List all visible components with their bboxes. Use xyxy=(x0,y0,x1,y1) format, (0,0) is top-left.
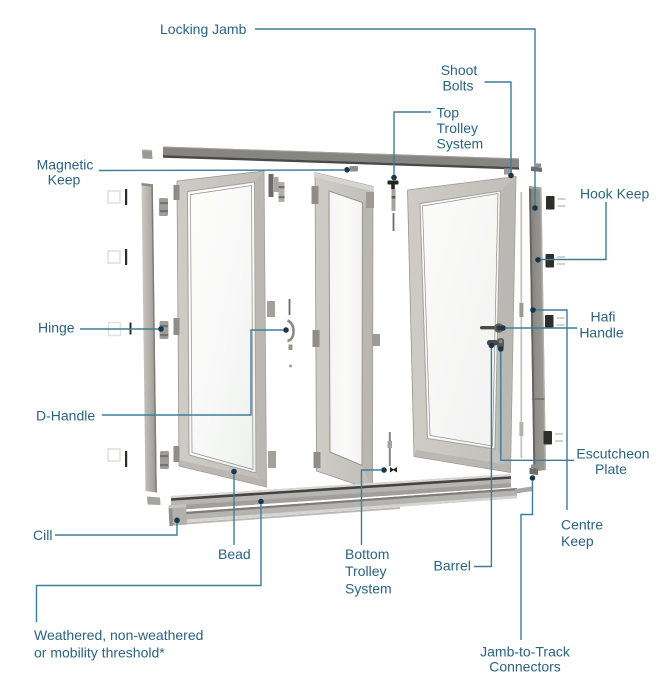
svg-text:Bolts: Bolts xyxy=(442,78,473,94)
svg-text:Connectors: Connectors xyxy=(489,659,561,675)
svg-text:or mobility threshold*: or mobility threshold* xyxy=(34,645,165,661)
svg-text:Weathered, non-weathered: Weathered, non-weathered xyxy=(34,627,203,643)
svg-text:Keep: Keep xyxy=(561,533,594,549)
svg-text:Plate: Plate xyxy=(595,461,627,477)
svg-text:Locking Jamb: Locking Jamb xyxy=(160,21,247,37)
svg-text:Cill: Cill xyxy=(33,527,52,543)
svg-text:Handle: Handle xyxy=(579,325,624,341)
svg-text:Barrel: Barrel xyxy=(434,558,471,574)
svg-text:Trolley: Trolley xyxy=(437,120,479,136)
svg-text:Top: Top xyxy=(437,105,460,121)
svg-text:Bottom: Bottom xyxy=(345,546,389,562)
svg-text:Hafi: Hafi xyxy=(591,309,616,325)
svg-text:System: System xyxy=(345,581,392,597)
svg-text:Escutcheon: Escutcheon xyxy=(576,446,649,462)
svg-text:Hinge: Hinge xyxy=(38,320,75,336)
svg-text:Shoot: Shoot xyxy=(441,62,478,78)
svg-text:Centre: Centre xyxy=(561,517,603,533)
svg-text:Trolley: Trolley xyxy=(345,563,387,579)
svg-text:Jamb-to-Track: Jamb-to-Track xyxy=(480,644,571,660)
svg-text:Magnetic: Magnetic xyxy=(37,157,94,173)
svg-text:D-Handle: D-Handle xyxy=(36,408,95,424)
svg-text:Bead: Bead xyxy=(218,546,251,562)
svg-text:Hook Keep: Hook Keep xyxy=(580,186,649,202)
svg-text:System: System xyxy=(437,136,484,152)
svg-text:Keep: Keep xyxy=(48,172,81,188)
